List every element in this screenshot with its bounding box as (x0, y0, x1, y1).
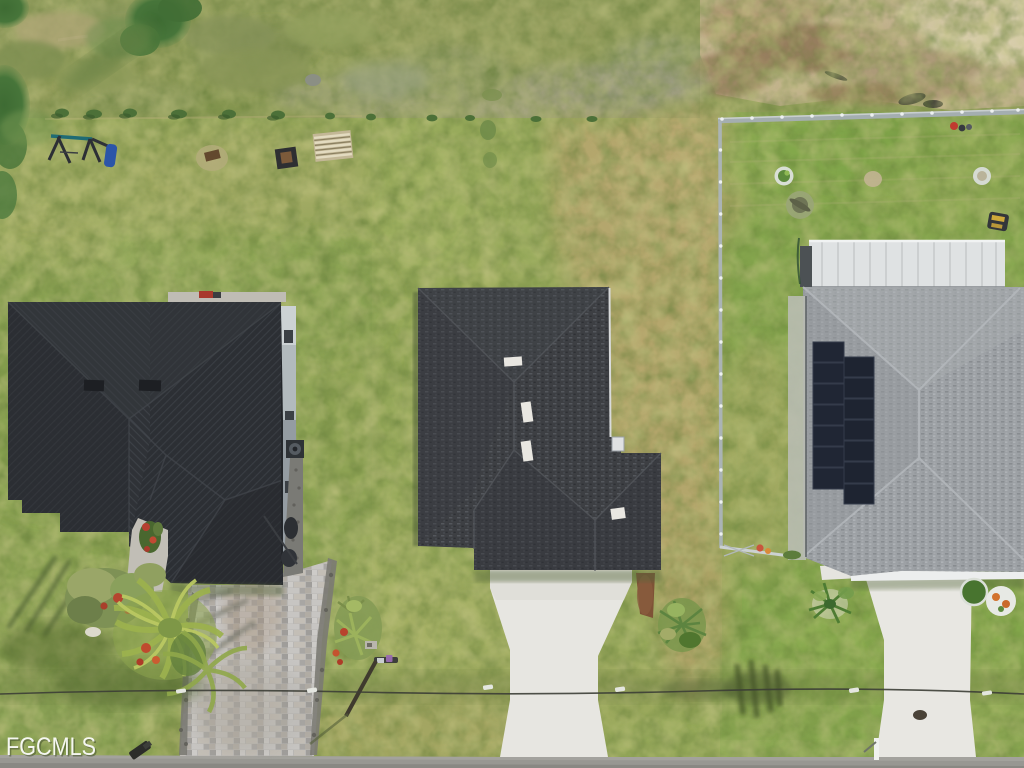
svg-text:FGCMLS: FGCMLS (6, 733, 96, 761)
